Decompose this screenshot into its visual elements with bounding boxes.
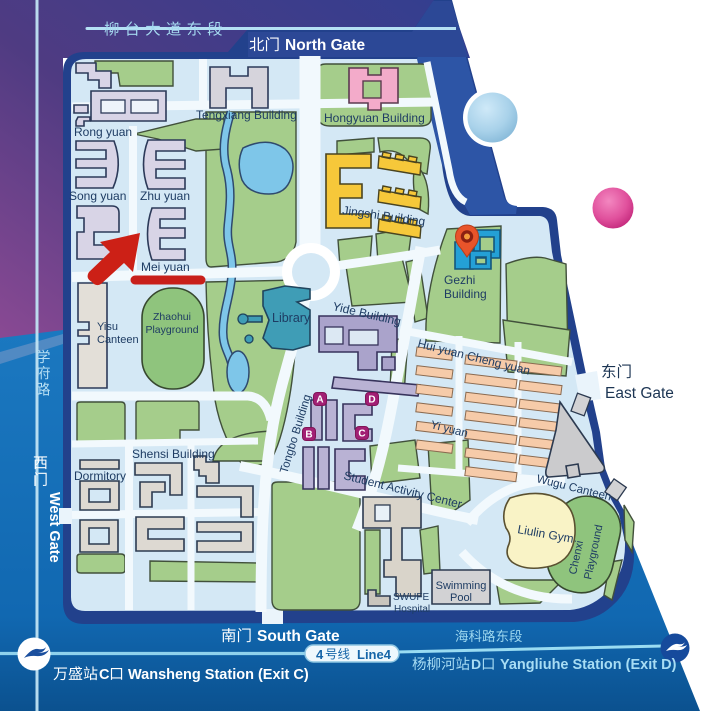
svg-text:Shensi Building: Shensi Building — [132, 447, 215, 461]
svg-text:Hospital: Hospital — [394, 604, 430, 615]
svg-text:B: B — [305, 430, 312, 441]
svg-text:Building: Building — [444, 287, 487, 301]
svg-text:South Gate: South Gate — [257, 628, 340, 645]
svg-text:C: C — [358, 429, 365, 440]
svg-text:SWUFE: SWUFE — [393, 592, 429, 603]
svg-text:D: D — [368, 395, 375, 406]
svg-text:Zhu yuan: Zhu yuan — [140, 189, 190, 203]
svg-text:Playground: Playground — [145, 324, 198, 336]
svg-text:Library: Library — [272, 311, 311, 325]
svg-text:Tengxiang Building: Tengxiang Building — [196, 108, 297, 122]
svg-text:East Gate: East Gate — [605, 385, 674, 402]
svg-text:Yisu: Yisu — [97, 321, 118, 333]
svg-text:Line4: Line4 — [357, 647, 392, 662]
svg-text:Pool: Pool — [450, 592, 472, 604]
svg-text:C: C — [99, 667, 110, 683]
svg-text:D: D — [471, 656, 481, 672]
svg-text:Rong yuan: Rong yuan — [74, 125, 132, 139]
svg-text:North Gate: North Gate — [285, 37, 365, 54]
svg-text:Zhaohui: Zhaohui — [153, 311, 191, 323]
svg-text:Hongyuan Building: Hongyuan Building — [324, 111, 425, 125]
svg-text:Yangliuhe Station (Exit D): Yangliuhe Station (Exit D) — [500, 657, 677, 673]
svg-text:West Gate: West Gate — [46, 492, 62, 563]
svg-text:4: 4 — [316, 647, 324, 662]
svg-text:Swimming: Swimming — [436, 580, 487, 592]
svg-text:Dormitory: Dormitory — [74, 469, 126, 483]
svg-text:Canteen: Canteen — [97, 334, 139, 346]
svg-text:Song yuan: Song yuan — [69, 189, 126, 203]
svg-text:A: A — [316, 395, 323, 406]
svg-text:Gezhi: Gezhi — [444, 273, 475, 287]
svg-text:Mei yuan: Mei yuan — [141, 260, 190, 274]
svg-text:Wansheng Station (Exit C): Wansheng Station (Exit C) — [128, 667, 309, 683]
